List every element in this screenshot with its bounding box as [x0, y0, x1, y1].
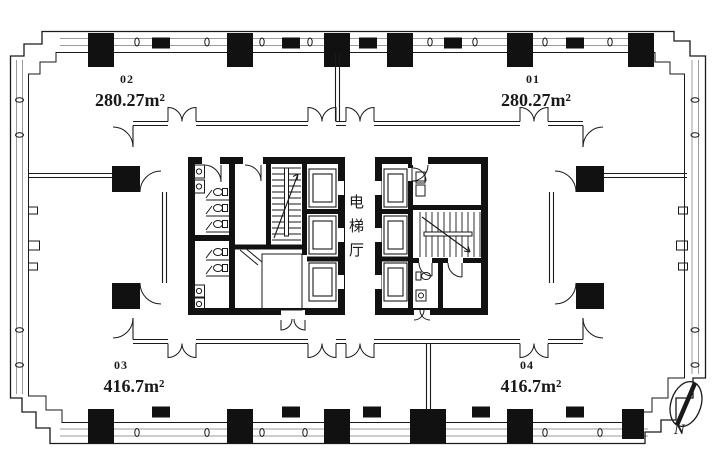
unit-04-area: 416.7m²: [501, 376, 562, 397]
elevator-hall-label: 电梯厅: [345, 194, 366, 266]
unit-03-number: 03: [114, 358, 128, 373]
unit-02-area: 280.27m²: [95, 90, 165, 111]
unit-04-number: 04: [520, 358, 534, 373]
elevator-icon: [384, 216, 407, 254]
elevator-icon: [384, 169, 407, 207]
elevator-bank-right: [384, 169, 407, 301]
stair-left-icon: [272, 168, 301, 240]
core-left-block: [191, 155, 344, 330]
floor-plan: 02 280.27m² 01 280.27m² 03 416.7m² 04 41…: [0, 0, 716, 456]
stair-right-icon: [420, 212, 480, 257]
toilet-stalls: [206, 189, 229, 277]
core-right-doors: [412, 165, 462, 320]
core-right-block: [375, 155, 485, 320]
elevator-icon: [384, 263, 407, 301]
core-left-partitions: [191, 160, 338, 312]
elevator-icon: [309, 169, 336, 207]
sink-icon: [416, 290, 426, 301]
unit-01-area: 280.27m²: [501, 90, 571, 111]
unit-03-area: 416.7m²: [104, 376, 165, 397]
elevator-icon: [309, 263, 336, 301]
wc-room: [416, 272, 431, 301]
north-arrow-icon: [665, 377, 708, 430]
toilet-icons: [214, 189, 228, 272]
elevator-icon: [309, 216, 336, 254]
unit-02-number: 02: [120, 72, 134, 87]
north-label: N: [674, 422, 685, 439]
unit-01-number: 01: [526, 72, 540, 87]
elevator-bank-left: [309, 169, 336, 301]
